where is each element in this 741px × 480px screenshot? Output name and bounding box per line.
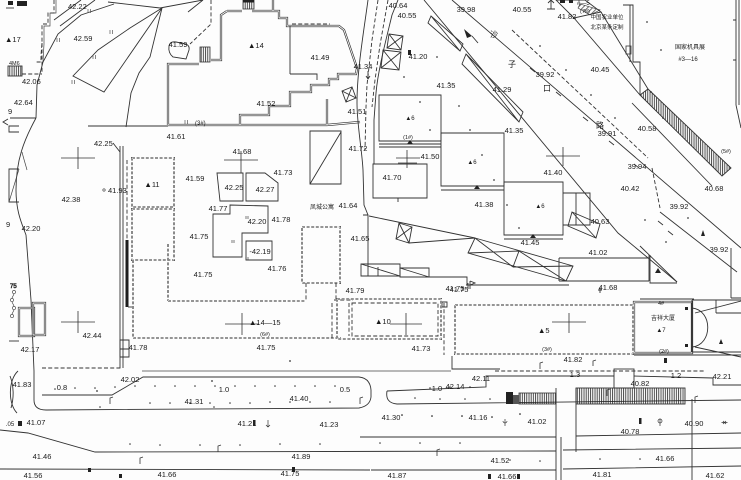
svg-text:▲10: ▲10	[375, 317, 391, 326]
svg-text:75: 75	[10, 284, 17, 290]
svg-text:-42.19: -42.19	[249, 247, 270, 256]
svg-text:39.92: 39.92	[536, 70, 555, 79]
svg-text:41.45: 41.45	[521, 238, 540, 247]
svg-text:.05: .05	[6, 422, 15, 428]
svg-text:41.68: 41.68	[233, 147, 252, 156]
svg-text:41.23: 41.23	[320, 420, 339, 429]
svg-text:40.78: 40.78	[621, 427, 640, 436]
svg-text:41.59: 41.59	[169, 40, 188, 49]
svg-text:40.82: 40.82	[631, 379, 650, 388]
svg-text:4M6: 4M6	[9, 61, 20, 67]
svg-text:41.66: 41.66	[656, 454, 675, 463]
svg-text:40.64: 40.64	[389, 1, 408, 10]
svg-text:41.70: 41.70	[383, 173, 402, 182]
svg-text:(1#): (1#)	[403, 135, 413, 141]
svg-text:41.35: 41.35	[505, 126, 524, 135]
svg-text:41.56: 41.56	[24, 471, 43, 480]
svg-text:沙: 沙	[490, 30, 498, 39]
svg-text:41.52: 41.52	[491, 456, 510, 465]
svg-text:41.83: 41.83	[13, 380, 32, 389]
svg-text:40.55: 40.55	[398, 11, 417, 20]
svg-text:41.73: 41.73	[412, 344, 431, 353]
svg-text:41.40: 41.40	[290, 394, 309, 403]
svg-text:41.31: 41.31	[185, 397, 204, 406]
svg-text:41.75: 41.75	[190, 232, 209, 241]
svg-text:0.8: 0.8	[57, 383, 67, 392]
svg-text:42.11: 42.11	[472, 374, 490, 383]
svg-text:42.22: 42.22	[68, 2, 87, 11]
svg-text:42.44: 42.44	[83, 331, 102, 340]
svg-text:41.75: 41.75	[194, 270, 213, 279]
svg-text:39.91: 39.91	[598, 129, 617, 138]
svg-text:41.40: 41.40	[544, 168, 563, 177]
svg-text:41.77: 41.77	[209, 204, 228, 213]
svg-text:41.82: 41.82	[558, 12, 577, 21]
svg-text:41.75: 41.75	[281, 469, 300, 478]
svg-text:子: 子	[508, 60, 516, 69]
svg-text:(2#): (2#)	[659, 349, 669, 355]
svg-text:41.59: 41.59	[186, 174, 205, 183]
svg-text:1.0: 1.0	[432, 384, 442, 393]
svg-text:39.92: 39.92	[670, 202, 689, 211]
svg-text:▲11: ▲11	[144, 180, 159, 189]
svg-text:41.50: 41.50	[421, 152, 440, 161]
svg-text:39.94: 39.94	[628, 162, 647, 171]
svg-text:41.35: 41.35	[437, 81, 456, 90]
svg-text:41.16: 41.16	[469, 413, 488, 422]
svg-text:(3#): (3#)	[542, 347, 552, 353]
svg-text:▲6: ▲6	[405, 116, 415, 122]
svg-text:42.59: 42.59	[74, 34, 93, 43]
svg-text:4#: 4#	[658, 301, 665, 307]
svg-text:1.0: 1.0	[219, 385, 229, 394]
svg-text:41.72: 41.72	[349, 144, 368, 153]
svg-text:#3—16: #3—16	[678, 57, 698, 63]
svg-text:国家机具展: 国家机具展	[675, 43, 705, 51]
svg-text:40.55: 40.55	[513, 5, 532, 14]
svg-text:▲14: ▲14	[248, 41, 264, 50]
svg-text:41.66: 41.66	[498, 472, 517, 480]
svg-text:41.52: 41.52	[257, 99, 276, 108]
svg-text:(3#): (3#)	[195, 121, 206, 127]
svg-text:41.62: 41.62	[706, 471, 725, 480]
svg-text:▲5: ▲5	[538, 326, 550, 335]
svg-text:41.75: 41.75	[446, 284, 465, 293]
svg-text:41.66: 41.66	[158, 470, 177, 479]
svg-text:42.20: 42.20	[248, 217, 267, 226]
svg-text:▲6: ▲6	[535, 204, 545, 210]
svg-text:中国农业单位: 中国农业单位	[590, 13, 624, 21]
svg-text:41.75: 41.75	[257, 343, 276, 352]
svg-text:42.06: 42.06	[22, 77, 41, 86]
svg-text:41.02: 41.02	[528, 417, 547, 426]
svg-text:41.46: 41.46	[33, 452, 52, 461]
svg-text:39.98: 39.98	[457, 5, 476, 14]
svg-text:41.87: 41.87	[388, 471, 407, 480]
svg-text:41.02: 41.02	[589, 248, 608, 257]
svg-text:41.49: 41.49	[311, 53, 330, 62]
svg-text:41.76: 41.76	[268, 264, 287, 273]
svg-text:41.30: 41.30	[382, 413, 401, 422]
svg-text:42.21: 42.21	[713, 372, 732, 381]
svg-text:42.25: 42.25	[225, 183, 244, 192]
svg-text:▲14—15: ▲14—15	[249, 318, 281, 327]
svg-text:41.89: 41.89	[292, 452, 311, 461]
svg-text:42.25: 42.25	[94, 139, 113, 148]
svg-text:42.64: 42.64	[14, 98, 33, 107]
svg-text:▲6: ▲6	[467, 160, 477, 166]
svg-text:40.42: 40.42	[621, 184, 640, 193]
svg-text:口: 口	[543, 84, 551, 93]
svg-text:41.34: 41.34	[354, 62, 373, 71]
svg-text:41.61: 41.61	[167, 132, 186, 141]
svg-text:42.27: 42.27	[256, 185, 275, 194]
svg-text:41.82: 41.82	[564, 355, 583, 364]
svg-text:41.64: 41.64	[339, 201, 358, 210]
svg-text:40.90: 40.90	[685, 419, 704, 428]
svg-text:#—5: #—5	[577, 1, 590, 7]
svg-text:吉祥大厦: 吉祥大厦	[651, 314, 675, 322]
svg-text:(7#): (7#)	[580, 9, 590, 15]
svg-text:41.65: 41.65	[351, 234, 370, 243]
svg-text:41.81: 41.81	[593, 470, 612, 479]
svg-text:42.38: 42.38	[62, 195, 81, 204]
svg-text:41.78: 41.78	[129, 343, 148, 352]
svg-text:41.78: 41.78	[272, 215, 291, 224]
svg-text:9: 9	[8, 107, 12, 116]
svg-text:北京某条定制: 北京某条定制	[590, 23, 624, 31]
svg-text:凤城公寓: 凤城公寓	[310, 203, 334, 211]
svg-text:41.07: 41.07	[27, 418, 46, 427]
svg-text:0.5: 0.5	[340, 385, 350, 394]
svg-text:1.3: 1.3	[570, 370, 580, 379]
svg-text:1.2: 1.2	[671, 371, 681, 380]
svg-text:39.92: 39.92	[710, 245, 729, 254]
svg-text:40.68: 40.68	[705, 184, 724, 193]
svg-text:42.14: 42.14	[446, 382, 465, 391]
svg-text:(6#): (6#)	[260, 332, 270, 338]
svg-text:(5#): (5#)	[721, 149, 731, 155]
svg-text:42.02: 42.02	[121, 375, 140, 384]
svg-text:41.68: 41.68	[599, 283, 618, 292]
svg-text:▲17: ▲17	[5, 35, 21, 44]
svg-text:▲7: ▲7	[656, 328, 666, 334]
svg-text:41.93: 41.93	[108, 186, 127, 195]
svg-text:41.73: 41.73	[274, 168, 293, 177]
svg-text:9: 9	[6, 220, 10, 229]
svg-text:41.38: 41.38	[475, 200, 494, 209]
svg-text:42.17: 42.17	[21, 345, 40, 354]
svg-text:40.63: 40.63	[591, 217, 610, 226]
svg-text:41.79: 41.79	[346, 286, 365, 295]
svg-text:41.20: 41.20	[409, 52, 428, 61]
svg-text:40.45: 40.45	[591, 65, 610, 74]
